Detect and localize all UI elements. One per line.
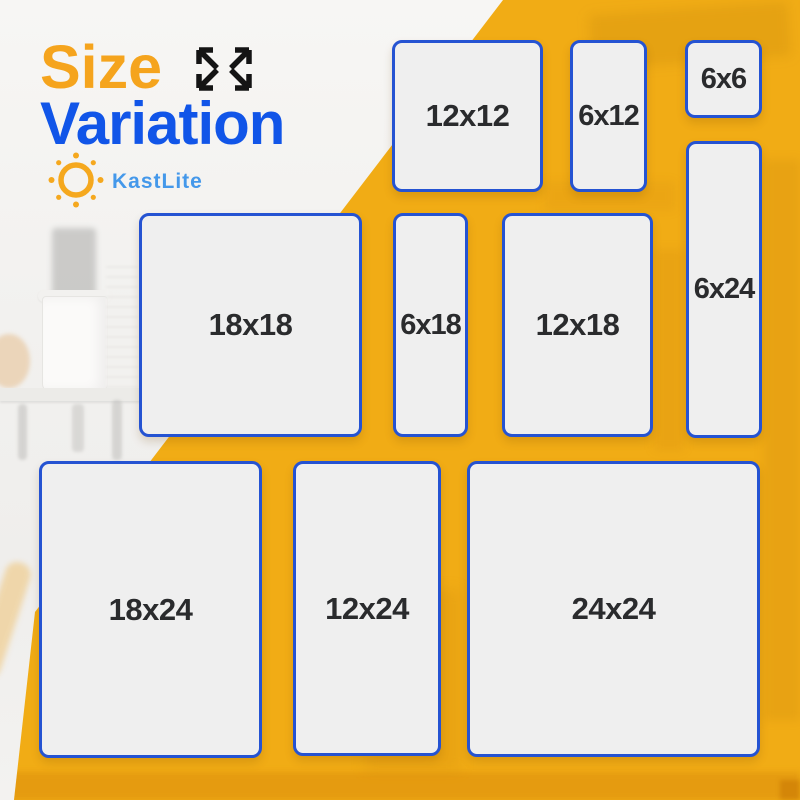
yellow-texture [0,772,800,800]
photo-bucket [42,296,108,392]
size-box-24x24: 24x24 [467,461,760,757]
size-label: 18x18 [209,307,293,343]
size-box-6x12: 6x12 [570,40,647,192]
brand-logo: KastLite [47,151,307,211]
size-box-18x18: 18x18 [139,213,362,437]
product-infographic: Size Variation KastLite 12x12 6x12 6x6 [0,0,800,800]
size-box-18x24: 18x24 [39,461,262,758]
photo-hanging-tool [72,404,84,452]
brand-name: KastLite [112,170,203,194]
photo-hanging-tool [18,404,27,460]
size-box-12x12: 12x12 [392,40,543,192]
expand-arrows-icon [193,40,255,103]
yellow-texture [780,780,800,800]
size-box-6x24: 6x24 [686,141,762,438]
yellow-texture [654,250,684,450]
photo-stacked-cups [106,258,138,390]
size-label: 12x24 [325,591,409,627]
photo-hanging-tool [112,400,122,460]
size-box-12x18: 12x18 [502,213,653,437]
size-box-6x18: 6x18 [393,213,468,437]
size-label: 24x24 [572,591,656,627]
size-label: 6x6 [701,63,746,96]
page-title-variation: Variation [40,94,284,154]
size-label: 18x24 [109,592,193,628]
size-box-6x6: 6x6 [685,40,762,118]
size-label: 6x12 [578,100,639,133]
size-box-12x24: 12x24 [293,461,441,756]
size-label: 6x18 [400,309,461,342]
yellow-texture [764,160,800,720]
page-title-size: Size [40,37,162,98]
size-label: 12x18 [536,307,620,343]
size-label: 6x24 [694,273,755,306]
size-label: 12x12 [426,98,510,134]
sun-icon [47,151,105,209]
